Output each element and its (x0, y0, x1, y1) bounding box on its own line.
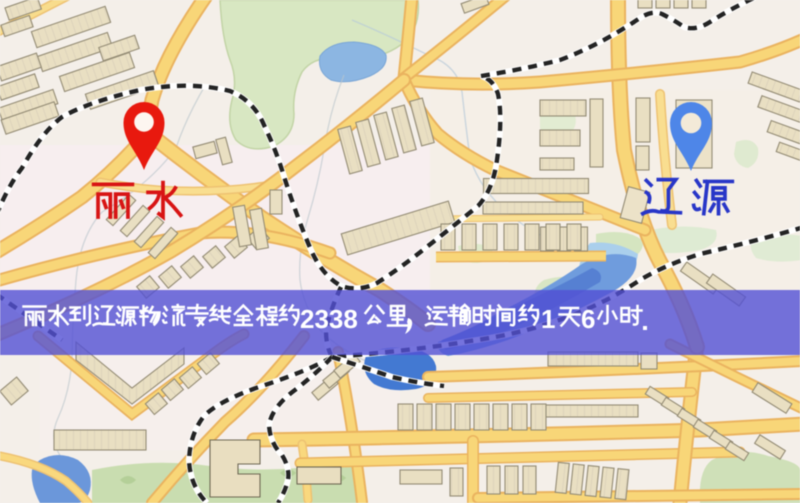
svg-text:2338: 2338 (300, 304, 358, 334)
svg-text:6: 6 (581, 304, 595, 334)
svg-text:1: 1 (541, 304, 555, 334)
